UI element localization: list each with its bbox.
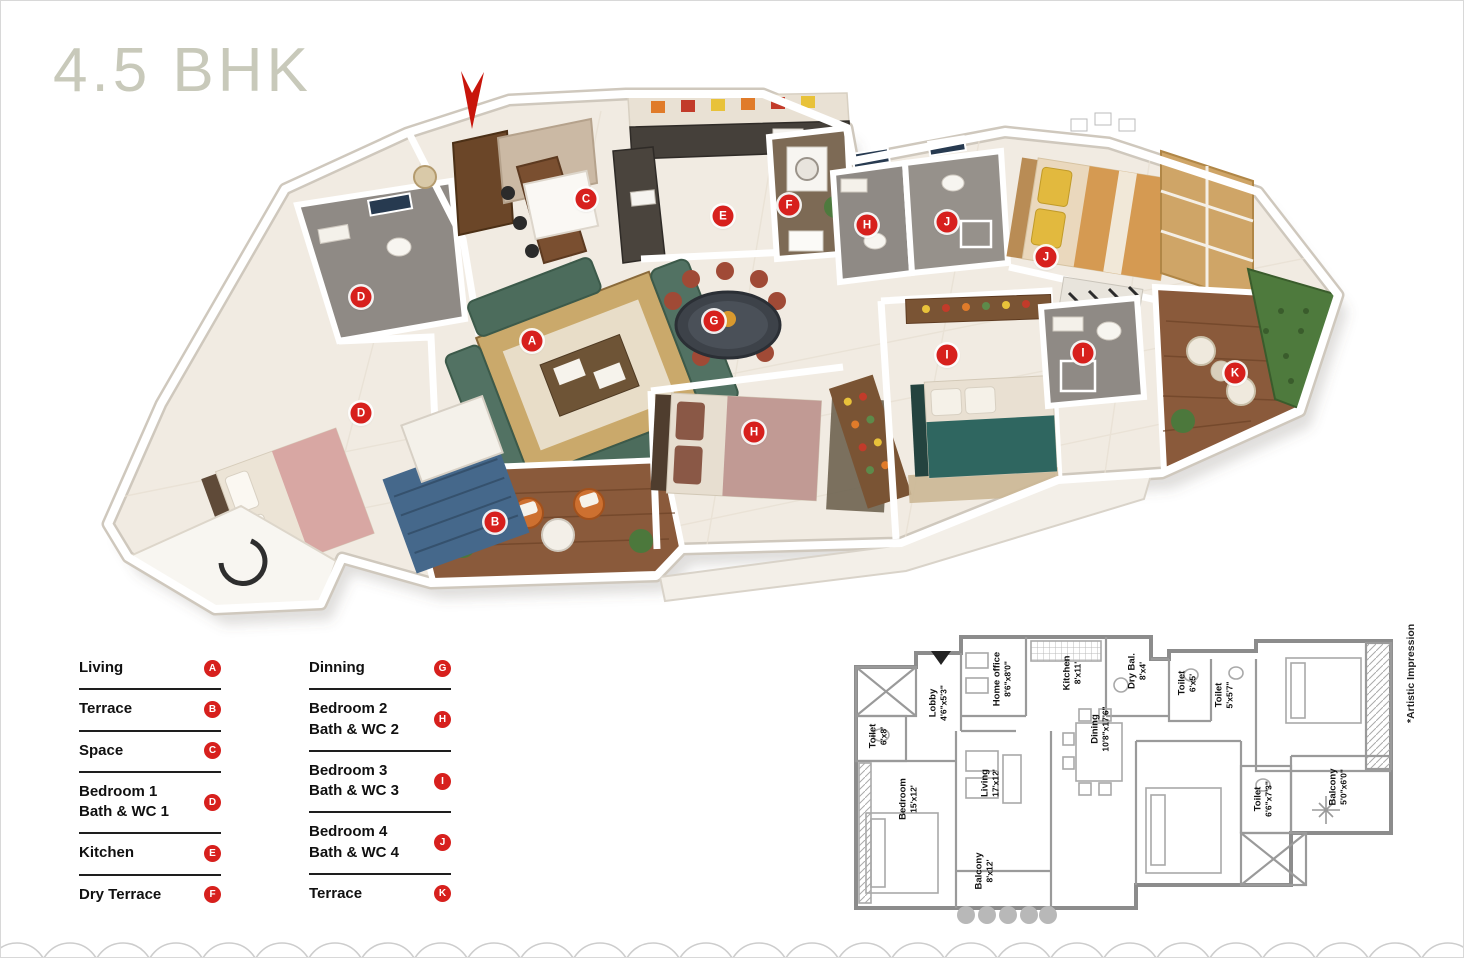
legend-item-j: Bedroom 4Bath & WC 4J [309, 813, 451, 875]
plan2d-label-living-9: Living17'x12' [981, 769, 1002, 797]
legend: LivingATerraceBSpaceCBedroom 1Bath & WC … [79, 649, 451, 915]
plan3d-marker-bedroom-1: D [351, 403, 372, 424]
legend-badge-e: E [204, 845, 221, 862]
plan3d-marker-bath-wc-2: H [857, 215, 878, 236]
plan2d-label-toilet-7: Toilet5'x5'7" [1215, 682, 1236, 709]
legend-badge-g: G [434, 660, 451, 677]
plan3d-marker-bath-wc-4: J [937, 212, 958, 233]
legend-item-e: KitchenE [79, 834, 221, 875]
plan2d-label-balcony-12: Balcony5'0"x6'0" [1329, 769, 1350, 806]
plan3d-marker-bedroom-3: I [937, 345, 958, 366]
plan2d-label-bedroom-8: Bedroom15'x12' [899, 778, 920, 820]
legend-badge-d: D [204, 794, 221, 811]
plan3d-marker-bath-wc-3: I [1073, 343, 1094, 364]
legend-column-2: DinningGBedroom 2Bath & WC 2HBedroom 3Ba… [309, 649, 451, 915]
legend-label: Bedroom 1Bath & WC 1 [79, 782, 169, 823]
legend-item-i: Bedroom 3Bath & WC 3I [309, 752, 451, 814]
plan3d-marker-bedroom-2: H [744, 422, 765, 443]
legend-column-1: LivingATerraceBSpaceCBedroom 1Bath & WC … [79, 649, 221, 915]
floorplan-page: 4.5 BHK ABCDDEFGHHJJIIK LivingATerraceBS… [0, 0, 1464, 958]
legend-label: Living [79, 658, 123, 678]
plan2d-label-kitchen-3: Kitchen8'x11' [1063, 656, 1084, 691]
legend-item-b: TerraceB [79, 690, 221, 731]
legend-item-g: DinningG [309, 649, 451, 690]
artistic-impression-note: *Artistic Impression [1405, 624, 1417, 723]
legend-item-c: SpaceC [79, 732, 221, 773]
plan3d-marker-terrace-2: K [1225, 363, 1246, 384]
legend-label: Space [79, 741, 123, 761]
plan3d-marker-space: C [576, 189, 597, 210]
legend-item-k: TerraceK [309, 875, 451, 914]
legend-badge-j: J [434, 834, 451, 851]
plan2d-label-balcony-10: Balcony8'x12' [975, 853, 996, 890]
legend-badge-f: F [204, 886, 221, 903]
legend-item-h: Bedroom 2Bath & WC 2H [309, 690, 451, 752]
legend-label: Kitchen [79, 843, 134, 863]
plan2d: Toilet6'x8'Lobby4'6"x5'3"Home office8'6"… [851, 623, 1396, 943]
plan2d-label-dining-4: Dining10'8"x17'6" [1091, 706, 1112, 751]
legend-label: Bedroom 3Bath & WC 3 [309, 761, 399, 802]
plan2d-label-toilet-0: Toilet6'x8' [869, 724, 890, 749]
legend-label: Terrace [79, 699, 132, 719]
legend-badge-i: I [434, 773, 451, 790]
plan3d-marker-bedroom-4: J [1036, 247, 1057, 268]
legend-badge-k: K [434, 885, 451, 902]
bottom-scallop-border [1, 939, 1464, 958]
legend-badge-b: B [204, 701, 221, 718]
page-title: 4.5 BHK [53, 35, 312, 106]
plan2d-label-toilet-11: Toilet6'6"x7'3" [1254, 781, 1275, 817]
plan2d-label-toilet-6: Toilet6'x5' [1178, 671, 1199, 696]
legend-badge-a: A [204, 660, 221, 677]
legend-badge-c: C [204, 742, 221, 759]
legend-item-a: LivingA [79, 649, 221, 690]
plan2d-label-dry-bal--5: Dry Bal.8'x4' [1128, 653, 1149, 689]
plan3d-marker-living: A [522, 331, 543, 352]
legend-badge-h: H [434, 711, 451, 728]
plan3d-marker-bath-wc-1: D [351, 287, 372, 308]
plan3d-marker-dinning: G [704, 311, 725, 332]
legend-label: Bedroom 4Bath & WC 4 [309, 822, 399, 863]
plan3d-marker-dry-terrace: F [779, 195, 800, 216]
legend-label: Dry Terrace [79, 885, 161, 905]
legend-label: Dinning [309, 658, 365, 678]
plan2d-label-home-office-2: Home office8'6"x8'0" [993, 652, 1014, 706]
legend-label: Terrace [309, 884, 362, 904]
plan3d-marker-terrace: B [485, 512, 506, 533]
plan2d-label-lobby-1: Lobby4'6"x5'3" [929, 685, 950, 721]
legend-item-f: Dry TerraceF [79, 876, 221, 915]
legend-label: Bedroom 2Bath & WC 2 [309, 699, 399, 740]
plan2d-graphic [851, 623, 1396, 943]
legend-item-d: Bedroom 1Bath & WC 1D [79, 773, 221, 835]
plan3d-marker-kitchen: E [713, 206, 734, 227]
